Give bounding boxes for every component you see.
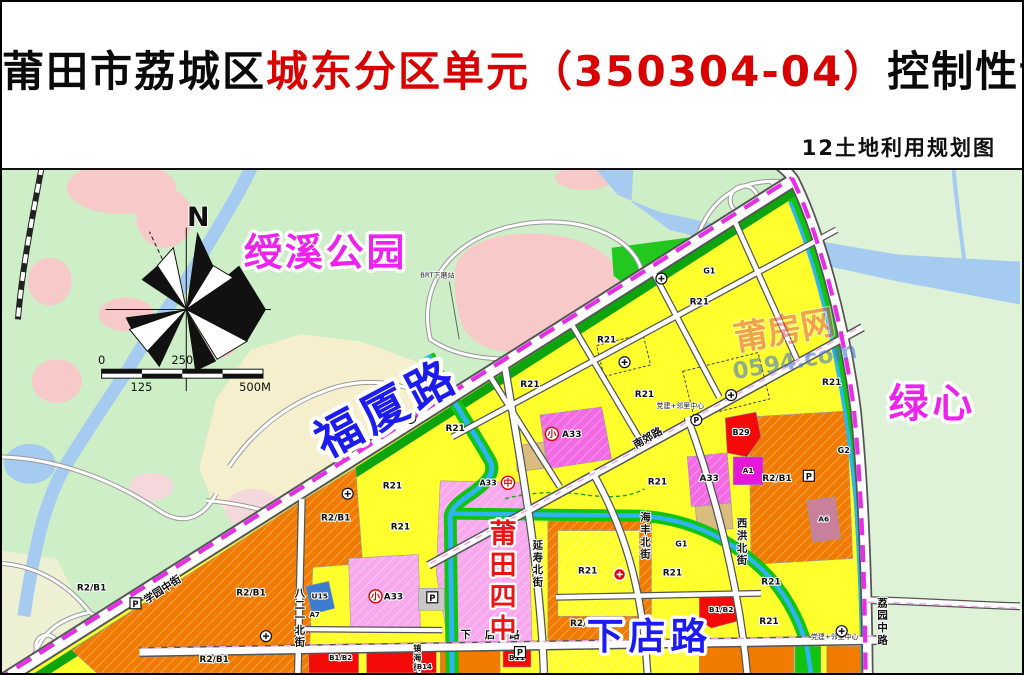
svg-text:P: P [429,593,435,603]
zone-label: B1/B2 [329,654,352,662]
redbadge-icon [614,568,626,580]
school-icon: 中 [502,476,515,489]
zone-label: R21 [578,566,597,576]
map-image: 0 250 125 500M 莆房网 0594.com 延寿北街海丰北街西洪北街… [2,170,1022,673]
sheet-subtitle: 12土地利用规划图 [802,132,996,162]
zone-label: R2/B1 [236,588,265,598]
facility-icon [656,273,667,284]
zone-label: R2/B1 [762,474,791,484]
zone-label: R21 [446,424,465,434]
school-icon: 小 [545,427,558,440]
annotation-label: 党建+邻里中心 [811,632,859,641]
svg-text:小: 小 [370,590,380,602]
zone-label: R21 [635,390,654,400]
zone-label: B1/B2 [709,605,734,614]
svg-text:P: P [517,648,523,658]
pbox-icon: P [427,592,438,603]
zone-label: R21 [391,523,410,533]
pbox-icon: P [514,647,525,658]
zone-label: G2 [838,446,850,455]
zone-label: R21 [761,577,780,587]
title-unit: 城东分区单元（350304-04） [266,47,887,96]
street-label: 延寿北街 [532,538,544,588]
page-title: 莆田市荔城区城东分区单元（350304-04）控制性详细规划 [2,2,1022,99]
svg-text:P: P [806,471,812,481]
facility-icon [619,357,630,368]
street-label: 荔园中路 [876,596,888,646]
zone-label: A6 [818,515,829,524]
zone-label: R21 [822,378,841,388]
xiadian-label: 下店路 [587,615,712,658]
zone-label: A33 [700,474,719,484]
facility-icon [342,488,353,499]
zone-label: R21 [648,478,667,488]
scale-500m: 500M [239,380,271,394]
title-district: 莆田市荔城区 [2,47,266,96]
zone-label: G1 [675,540,687,549]
zone-label: R2/B1 [77,583,106,593]
street-label: 西洪北街 [736,518,748,567]
school-label: 莆田四中 [490,519,517,645]
zone-label: R21 [663,568,682,578]
zone-label: A7 [310,611,320,619]
zone-label: A1 [743,466,754,475]
park-label: 绶溪公园 [244,231,407,275]
annotation-label: 党建+邻里中心 [657,401,705,410]
facility-icon [836,626,847,637]
annotation-label: BRT下磨站 [420,271,454,280]
svg-text:中: 中 [504,477,513,489]
svg-text:P: P [132,599,138,609]
pcircle-icon: P [691,415,702,426]
zone-label: R21 [597,335,616,345]
pbox-icon: P [130,598,141,609]
zone-label: A33 [479,479,496,488]
zone-label: R2/B1 [199,655,228,665]
facility-icon [260,631,271,642]
facility-icon [726,390,737,401]
school-icon: 小 [369,590,382,603]
zone-label: R21 [520,380,539,390]
zone-label: U15 [312,591,328,600]
street-label: 八二一北街 [294,587,306,648]
scale-0: 0 [98,353,105,367]
zone-label: B14 [417,663,432,671]
zone-label: R21 [690,297,709,307]
zone-label: A33 [562,430,581,440]
pbox-icon: P [803,470,814,481]
green_heart-label: 绿心 [889,381,977,427]
svg-text:小: 小 [546,428,556,440]
title-type: 控制性详细规划 [887,47,1024,96]
planning-map-sheet: 莆田市荔城区城东分区单元（350304-04）控制性详细规划 12土地利用规划图 [0,0,1024,675]
zone-label: R2/B1 [321,514,350,524]
svg-text:P: P [693,416,699,425]
scale-125: 125 [131,380,153,394]
street-label: 海丰北街 [639,511,651,561]
zone-label: G1 [703,267,715,276]
north-label: N [187,202,210,233]
zone-label: B29 [733,428,751,437]
title-bar: 莆田市荔城区城东分区单元（350304-04）控制性详细规划 12土地利用规划图 [2,2,1022,170]
scale-250: 250 [171,353,193,367]
zone-label: R21 [383,482,402,492]
zone-label: R21 [759,617,778,627]
zone-label: A33 [384,592,403,602]
